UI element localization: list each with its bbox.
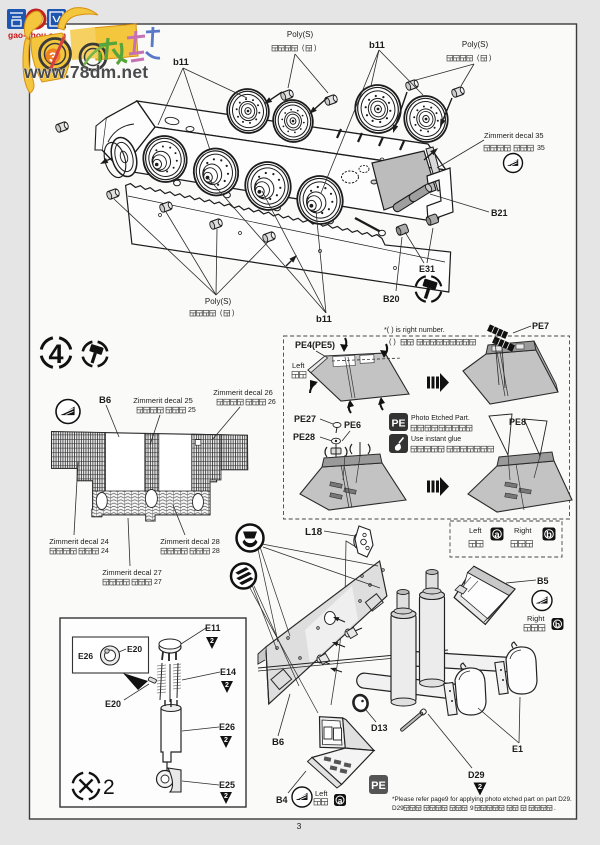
svg-text:35: 35 [537, 145, 545, 152]
svg-text:PE7: PE7 [532, 321, 549, 331]
svg-text:Zimmerit decal 25: Zimmerit decal 25 [133, 396, 193, 405]
svg-text:E1: E1 [512, 744, 523, 754]
svg-text:D29: D29 [392, 805, 404, 812]
svg-text:4: 4 [48, 339, 63, 369]
svg-text:): ) [232, 310, 234, 317]
svg-text:b11: b11 [369, 40, 386, 51]
svg-text:2: 2 [210, 638, 214, 645]
svg-text:): ) [314, 45, 316, 52]
svg-text:a: a [494, 529, 500, 540]
svg-text:27: 27 [154, 579, 162, 586]
svg-text:b: b [546, 529, 552, 540]
svg-text:D29: D29 [468, 770, 485, 780]
svg-text:Right: Right [527, 614, 545, 623]
svg-text:PE28: PE28 [293, 432, 315, 442]
svg-text:24: 24 [101, 548, 109, 555]
svg-text:D13: D13 [371, 723, 388, 733]
svg-text:Zimmerit decal 27: Zimmerit decal 27 [102, 568, 162, 577]
svg-text:Zimmerit decal 28: Zimmerit decal 28 [160, 537, 220, 546]
svg-text:PE: PE [371, 780, 386, 792]
svg-text:): ) [489, 55, 491, 62]
svg-text:Zimmerit decal 26: Zimmerit decal 26 [213, 388, 273, 397]
svg-text:E11: E11 [205, 623, 221, 633]
svg-text:E20: E20 [105, 699, 121, 709]
svg-text:E14: E14 [220, 667, 236, 677]
svg-text:Photo Etched Part.: Photo Etched Part. [411, 415, 470, 422]
svg-text:26: 26 [268, 399, 276, 406]
svg-text:Poly(S): Poly(S) [205, 297, 232, 306]
svg-text:2: 2 [224, 793, 228, 800]
svg-text:PE4(PE5): PE4(PE5) [295, 340, 335, 350]
svg-text:b11: b11 [316, 314, 333, 325]
svg-text:b11: b11 [173, 57, 190, 68]
svg-text:28: 28 [212, 548, 220, 555]
svg-text:.: . [554, 805, 556, 812]
svg-text:PE8: PE8 [509, 417, 526, 427]
svg-text:2: 2 [478, 782, 482, 791]
svg-text:B4: B4 [276, 795, 288, 805]
svg-text:a: a [338, 795, 343, 805]
svg-text:Left: Left [315, 789, 328, 798]
svg-text:E26: E26 [78, 651, 93, 661]
svg-text:2: 2 [103, 776, 115, 799]
svg-text:( ): ( ) [389, 337, 396, 346]
svg-text:E31: E31 [419, 264, 435, 274]
svg-text:b: b [555, 619, 560, 629]
svg-text:Poly(S): Poly(S) [462, 40, 489, 49]
svg-text:2: 2 [224, 737, 228, 744]
svg-text:B6: B6 [99, 395, 111, 406]
svg-text:Right: Right [514, 526, 532, 535]
svg-text:E25: E25 [219, 780, 235, 790]
svg-text:E26: E26 [219, 722, 235, 732]
svg-text:B5: B5 [537, 576, 549, 586]
svg-text:PE6: PE6 [344, 420, 361, 430]
svg-text:Left: Left [469, 526, 482, 535]
svg-text:Poly(S): Poly(S) [287, 30, 314, 39]
svg-text:*Please refer page9 for applyi: *Please refer page9 for applying photo e… [392, 796, 572, 803]
svg-text:B6: B6 [272, 737, 284, 748]
svg-text:Use instant glue: Use instant glue [411, 436, 461, 443]
svg-text:25: 25 [188, 407, 196, 414]
svg-text:L18: L18 [305, 527, 323, 538]
svg-text:*( ) is right number.: *( ) is right number. [384, 325, 445, 334]
svg-text:Zimmerit decal 24: Zimmerit decal 24 [49, 537, 109, 546]
svg-text:PE: PE [391, 418, 405, 430]
svg-text:PE27: PE27 [294, 414, 316, 424]
svg-text:Zimmerit decal 35: Zimmerit decal 35 [484, 131, 544, 140]
svg-text:B20: B20 [383, 294, 400, 304]
svg-text:E20: E20 [127, 644, 142, 654]
svg-text:B21: B21 [491, 208, 508, 218]
svg-text:Left: Left [292, 361, 305, 370]
svg-text:9: 9 [470, 805, 474, 812]
svg-text:3: 3 [297, 821, 302, 831]
svg-text:www.78dm.net: www.78dm.net [23, 62, 148, 82]
svg-text:2: 2 [225, 682, 229, 689]
